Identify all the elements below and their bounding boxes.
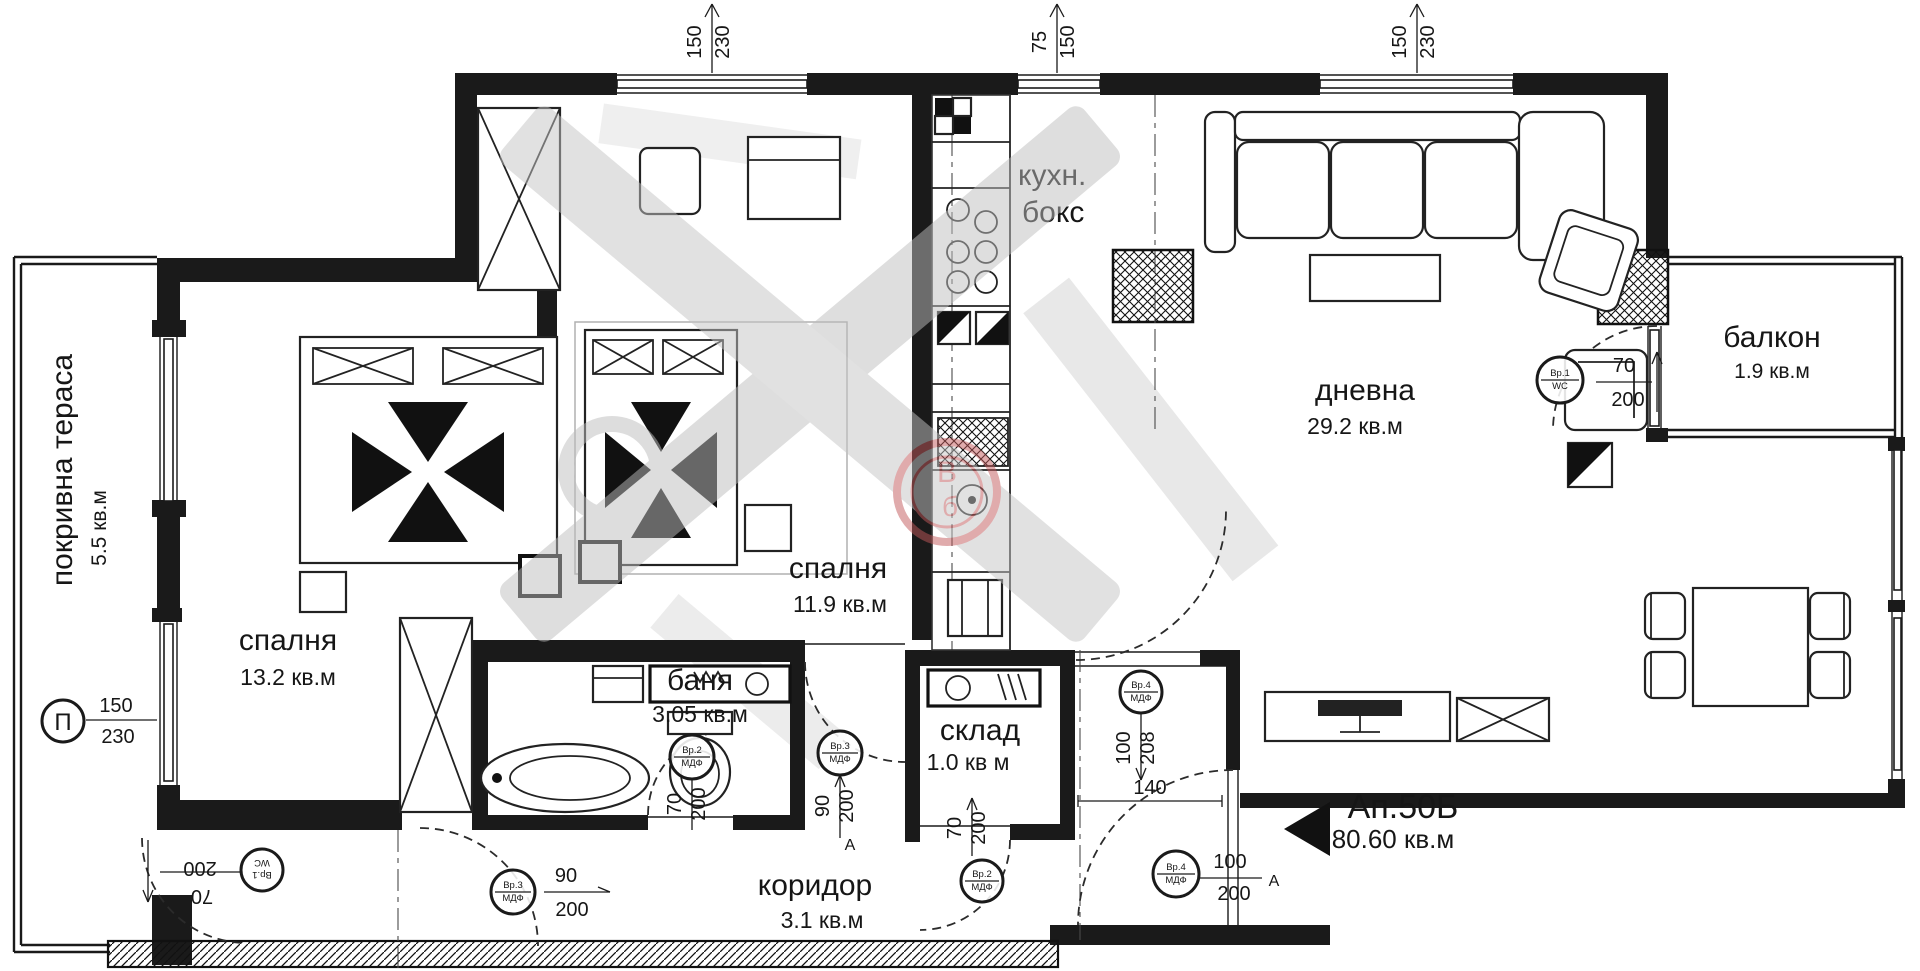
dim-top-2-num: 75 <box>1029 31 1051 53</box>
nightstand-icon-2 <box>745 505 791 551</box>
storage-area: 1.0 кв м <box>927 749 1010 775</box>
door-bath-code: Вр.2 <box>682 745 702 756</box>
plant-square-icon <box>1568 443 1612 487</box>
door-storage-num: 70 <box>944 817 966 839</box>
door-passage-den: 200 <box>836 789 858 822</box>
door-marker-entry: Вр.4 МДФ 100 200 А <box>1153 851 1280 905</box>
bedroom1-name: спалня <box>239 624 337 657</box>
door-balcony-num: 70 <box>1613 355 1635 377</box>
door-entry-den: 200 <box>1217 883 1250 905</box>
door-terrace-den: 200 <box>183 857 216 879</box>
room-label-balcony: балкон 1.9 кв.м <box>1723 321 1820 383</box>
cabinet-x-icon <box>1457 698 1549 741</box>
door-passage-spec: МДФ <box>829 754 850 765</box>
door-entry-spec: МДФ <box>1165 875 1186 886</box>
wardrobe-icon-2 <box>400 618 472 812</box>
door-marker-corridor: Вр.3 МДФ 90 200 <box>491 865 610 921</box>
door-passage-num: 90 <box>812 795 834 817</box>
door-balcony-den: 200 <box>1611 389 1644 411</box>
bath-area: 3.05 кв.м <box>652 701 748 727</box>
dim-top-1-num: 150 <box>684 25 706 58</box>
bath-shelf-icon <box>593 666 643 702</box>
dim-top-3-num: 150 <box>1389 25 1411 58</box>
door-marker-storage: 70 200 Вр.2 МДФ <box>944 798 1003 902</box>
window-top-1 <box>617 75 807 93</box>
door-bath-spec: МДФ <box>681 758 702 769</box>
door-marker-passage: Вр.3 МДФ 90 200 А <box>812 731 862 854</box>
corridor-area: 3.1 кв.м <box>781 907 864 933</box>
terrace-area: 5.5 кв.м <box>88 490 111 566</box>
watermark-letter-2: б <box>942 491 958 522</box>
apartment-number: Ап.50Б <box>1348 788 1459 826</box>
terrace-walls <box>14 257 157 952</box>
door-kitchen-num: 100 <box>1113 731 1135 764</box>
dim-top-3-den: 230 <box>1417 25 1439 58</box>
floor-plan-drawing: 150 230 75 150 150 230 П 150 230 Вр.1 WC… <box>0 0 1920 971</box>
dim-top-1: 150 230 <box>684 4 734 73</box>
room-label-storage: склад 1.0 кв м <box>927 714 1021 775</box>
door-entry-suffix: А <box>1269 873 1280 890</box>
dim-top-2: 75 150 <box>1029 4 1079 73</box>
bedroom2-area: 11.9 кв.м <box>793 591 887 617</box>
balcony-area: 1.9 кв.м <box>1734 360 1810 383</box>
dim-top-3: 150 230 <box>1389 4 1439 73</box>
door-corridor-num: 90 <box>555 865 577 887</box>
door-storage-spec: МДФ <box>971 882 992 893</box>
terrace-window-mark: П <box>54 709 71 736</box>
door-entry-code: Вр.4 <box>1166 862 1186 873</box>
desk-icon <box>748 137 840 219</box>
window-bay-right <box>1892 437 1902 793</box>
dining-table-icon <box>1645 588 1850 706</box>
living-name: дневна <box>1315 374 1415 407</box>
coffee-table-icon <box>1310 255 1440 301</box>
door-balcony-code: Вр.1 <box>1550 368 1570 379</box>
door-corridor-den: 200 <box>555 899 588 921</box>
door-bath-den: 200 <box>688 787 710 820</box>
bedroom1-area: 13.2 кв.м <box>240 664 336 690</box>
pass-width-label: 140 <box>1133 777 1166 799</box>
terrace-name: покривна тераса <box>46 354 79 586</box>
room-label-bedroom-1: спалня 13.2 кв.м <box>239 624 337 690</box>
window-top-3 <box>1320 75 1513 93</box>
balcony-name: балкон <box>1723 321 1820 354</box>
watermark-letter-1: В <box>937 456 957 489</box>
bathtub-icon <box>481 744 649 812</box>
storage-name: склад <box>940 714 1020 747</box>
corridor-name: коридор <box>758 869 872 902</box>
door-balcony-spec: WC <box>1552 381 1568 392</box>
terrace-window-den: 230 <box>101 726 134 748</box>
dim-top-2-den: 150 <box>1057 25 1079 58</box>
door-passage-suffix: А <box>845 837 856 854</box>
terrace-window-marker: П 150 230 <box>42 695 157 748</box>
room-label-bedroom-2: спалня 11.9 кв.м <box>789 552 887 617</box>
room-label-terrace: покривна тераса 5.5 кв.м <box>46 354 111 586</box>
door-terrace-code: Вр.1 <box>252 869 272 880</box>
door-corridor-code: Вр.3 <box>503 880 523 891</box>
entrance-arrow-icon <box>1284 802 1330 856</box>
door-kitchen-den: 208 <box>1137 731 1159 764</box>
door-kitchen-code: Вр.4 <box>1131 680 1151 691</box>
room-label-living: дневна 29.2 кв.м <box>1307 374 1415 439</box>
door-terrace-spec: WC <box>254 857 270 868</box>
sofa-icon <box>1205 112 1604 260</box>
door-bath-num: 70 <box>664 793 686 815</box>
bath-name: баня <box>667 664 733 697</box>
bed-icon-1 <box>300 337 557 563</box>
living-area: 29.2 кв.м <box>1307 413 1403 439</box>
boiler-icon <box>928 670 1040 706</box>
door-terrace-num: 70 <box>191 885 213 907</box>
door-corridor-spec: МДФ <box>502 893 523 904</box>
nightstand-icon-1 <box>300 572 346 612</box>
door-storage-den: 200 <box>968 811 990 844</box>
window-balcony-door <box>1648 326 1661 428</box>
door-passage-code: Вр.3 <box>830 741 850 752</box>
terrace-window-num: 150 <box>99 695 132 717</box>
door-marker-kitchen: Вр.4 МДФ 100 208 140 <box>1078 671 1222 807</box>
window-left-upper <box>160 335 177 505</box>
window-top-2 <box>1018 75 1100 93</box>
door-storage-code: Вр.2 <box>972 869 992 880</box>
dim-top-1-den: 230 <box>712 25 734 58</box>
window-left-lower <box>160 620 177 785</box>
room-label-corridor: коридор 3.1 кв.м <box>758 869 872 933</box>
door-entry-num: 100 <box>1213 851 1246 873</box>
tv-cabinet-icon <box>1265 692 1450 741</box>
bedroom2-name: спалня <box>789 552 887 585</box>
floor-plan-canvas: 150 230 75 150 150 230 П 150 230 Вр.1 WC… <box>0 0 1920 971</box>
apartment-area: 80.60 кв.м <box>1332 824 1455 854</box>
door-kitchen-spec: МДФ <box>1130 693 1151 704</box>
